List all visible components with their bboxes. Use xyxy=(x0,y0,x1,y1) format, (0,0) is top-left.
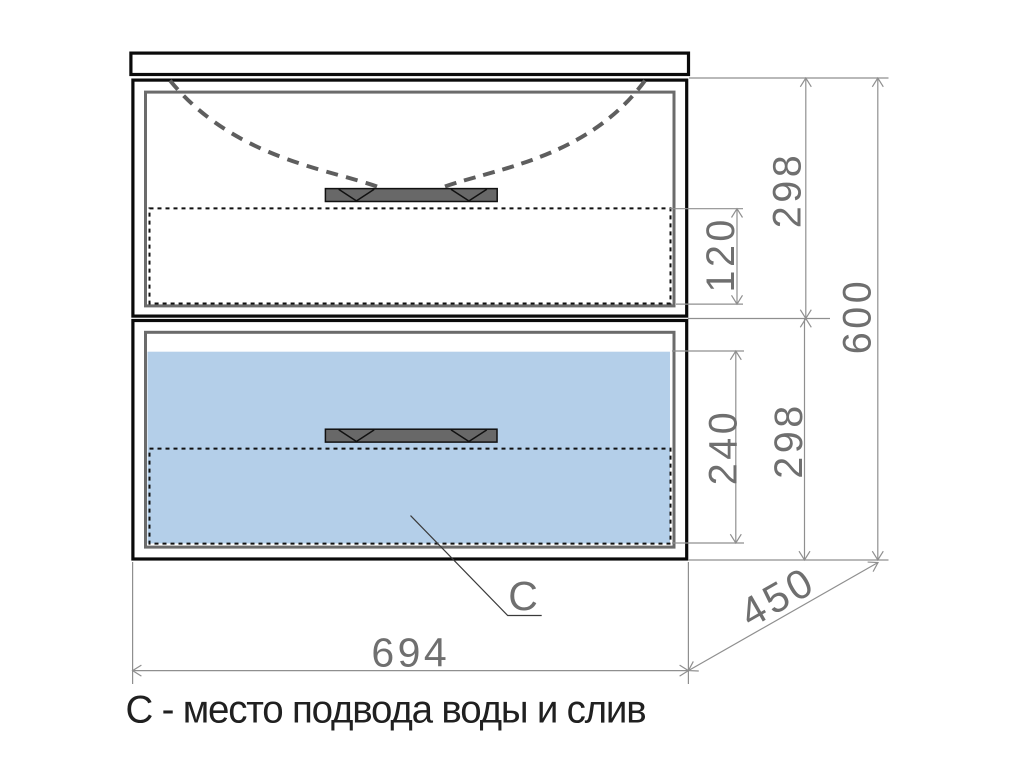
svg-text:120: 120 xyxy=(699,216,743,292)
svg-text:298: 298 xyxy=(765,152,809,228)
svg-text:С - место подвода воды и слив: С - место подвода воды и слив xyxy=(126,688,646,731)
svg-text:240: 240 xyxy=(702,409,746,485)
svg-text:600: 600 xyxy=(835,278,879,354)
svg-text:298: 298 xyxy=(767,402,811,478)
svg-text:694: 694 xyxy=(371,630,450,676)
svg-text:C: C xyxy=(508,573,538,619)
